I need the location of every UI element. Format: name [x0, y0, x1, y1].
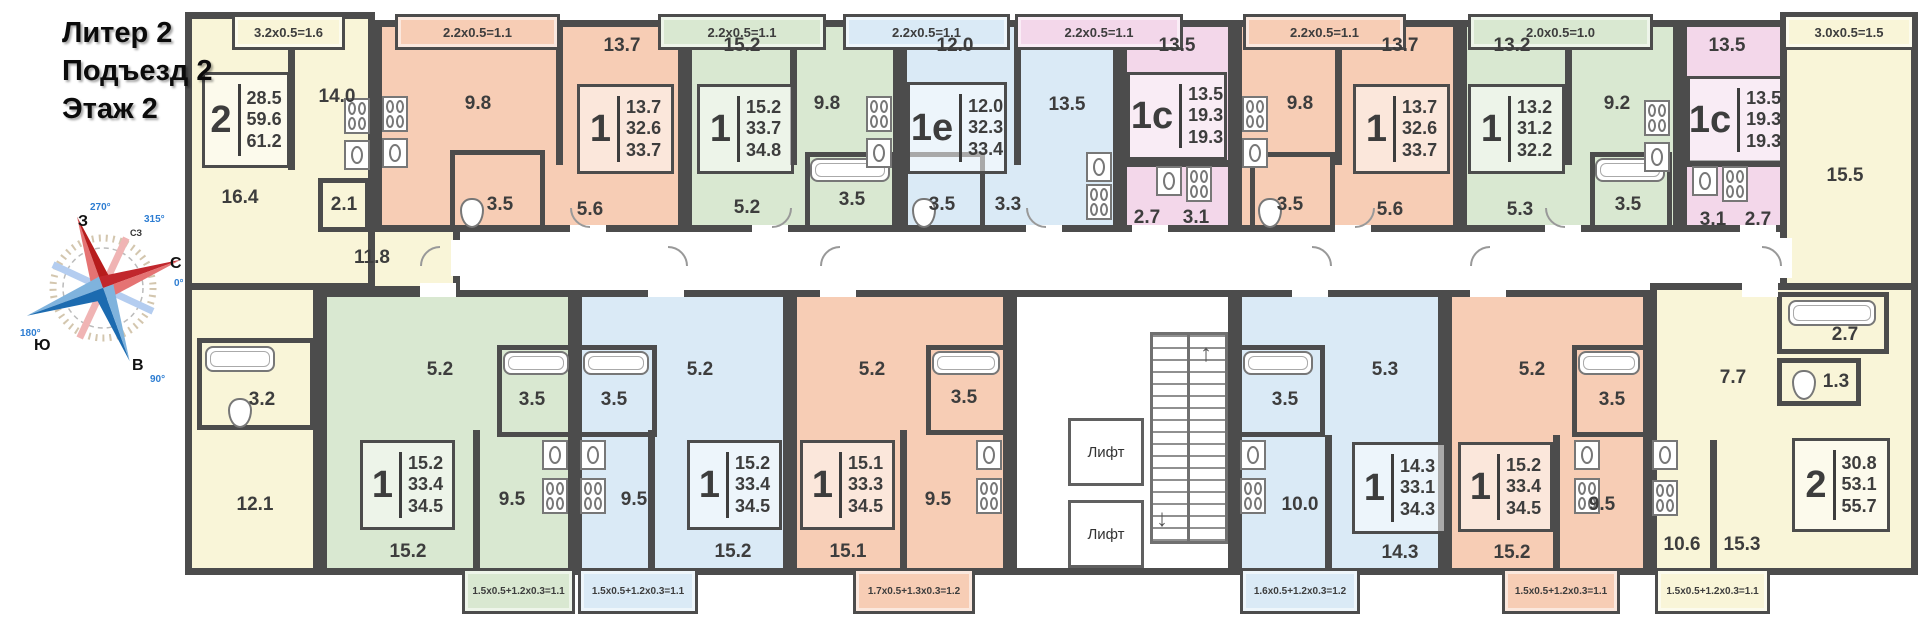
apartment-type: 1 — [812, 466, 833, 504]
compass-west-label: З — [78, 213, 88, 230]
room-area-label: 9.8 — [814, 93, 840, 115]
area-value: 34.5 — [735, 496, 770, 517]
balcony-size-label: 2.2x0.5=1.1 — [1064, 25, 1133, 40]
room-area-label: 5.6 — [1377, 199, 1403, 221]
room-area-label: 5.2 — [687, 359, 713, 381]
sink-icon — [382, 138, 408, 168]
stove-icon — [382, 96, 408, 132]
stove-icon — [1722, 166, 1748, 202]
stairs-up-arrow-icon: ↑ — [1200, 340, 1212, 368]
room-area-label: 15.2 — [724, 35, 761, 57]
compass-east-degrees: 90° — [150, 374, 165, 385]
apartment-type: 1е — [911, 109, 953, 147]
area-value: 33.4 — [735, 474, 770, 495]
title-entrance: Подъезд 2 — [62, 52, 212, 90]
balcony: 2.2x0.5=1.1 — [395, 14, 560, 50]
apartment-type: 1 — [1481, 110, 1502, 148]
room-area-label: 3.5 — [1272, 389, 1298, 411]
area-value: 14.3 — [1400, 456, 1435, 477]
area-value: 15.1 — [848, 453, 883, 474]
area-value: 33.4 — [1506, 476, 1541, 497]
sink-icon — [1240, 440, 1266, 470]
balcony-size-label: 2.2x0.5=1.1 — [443, 25, 512, 40]
door-opening — [1335, 225, 1371, 239]
apartment-type-box: 1е 12.032.333.4 — [907, 82, 1007, 174]
door-opening — [1742, 283, 1778, 297]
room-area-label: 3.5 — [601, 389, 627, 411]
apartment-type-box: 1 15.233.434.5 — [360, 440, 455, 530]
balcony: 3.2x0.5=1.6 — [232, 14, 345, 50]
room-area-label: 3.5 — [1277, 194, 1303, 216]
compass-south-label: Ю — [34, 337, 51, 354]
area-value: 19.3 — [1746, 109, 1781, 130]
apartment-type-box: 1 14.333.134.3 — [1352, 442, 1447, 534]
bathtub-icon — [205, 346, 275, 372]
area-value: 13.5 — [1746, 88, 1781, 109]
apartment-type-box: 1 15.233.434.5 — [1458, 442, 1553, 532]
room-area-label: 13.5 — [1709, 35, 1746, 57]
balcony-size-label: 2.0x0.5=1.0 — [1526, 25, 1595, 40]
room-area-label: 3.3 — [995, 194, 1021, 216]
room-area-label: 3.5 — [1599, 389, 1625, 411]
balcony: 1.5x0.5+1.2x0.3=1.1 — [1655, 568, 1770, 614]
door-swing-arc — [1292, 246, 1332, 286]
room-area-label: 5.3 — [1507, 199, 1533, 221]
apartment-type: 1 — [699, 466, 720, 504]
apartment-type-box: 1 15.233.734.8 — [697, 84, 794, 174]
apartment-type: 1 — [1366, 110, 1387, 148]
balcony: 2.2x0.5=1.1 — [843, 14, 1010, 50]
room-area-label: 12.1 — [237, 494, 274, 516]
sink-icon — [1574, 440, 1600, 470]
elevator-1: Лифт — [1068, 418, 1144, 486]
room-area-label: 3.5 — [839, 189, 865, 211]
area-value: 53.1 — [1842, 474, 1877, 495]
room-area-label: 14.3 — [1382, 542, 1419, 564]
apartment-type: 1 — [372, 466, 393, 504]
room-area-label: 13.5 — [1159, 35, 1196, 57]
balcony-size-label: 1.5x0.5+1.2x0.3=1.1 — [592, 586, 684, 597]
area-value: 32.6 — [626, 118, 661, 139]
room-area-label: 9.5 — [621, 489, 647, 511]
staircase-divider — [1187, 332, 1190, 544]
balcony: 1.6x0.5+1.2x0.3=1.2 — [1240, 568, 1360, 614]
area-value: 13.7 — [626, 97, 661, 118]
bathtub-icon — [583, 351, 649, 375]
area-value: 28.5 — [247, 88, 282, 109]
sink-icon — [1652, 440, 1678, 470]
room-area-label: 10.0 — [1282, 494, 1319, 516]
bathtub-icon — [1243, 351, 1313, 375]
area-value: 34.3 — [1400, 499, 1435, 520]
room-area-label: 15.3 — [1724, 534, 1761, 556]
area-value: 12.0 — [968, 96, 1003, 117]
door-opening — [820, 283, 856, 297]
door-opening — [648, 283, 684, 297]
room-area-label: 3.5 — [487, 194, 513, 216]
apartment-type-box: 1с 13.519.319.3 — [1127, 72, 1227, 160]
area-value: 13.2 — [1517, 97, 1552, 118]
stove-icon — [976, 478, 1002, 514]
room-area-label: 12.0 — [937, 35, 974, 57]
wall-segment — [1553, 435, 1560, 575]
balcony-size-label: 2.2x0.5=1.1 — [1290, 25, 1359, 40]
area-value: 33.4 — [968, 139, 1003, 160]
area-value: 32.2 — [1517, 140, 1552, 161]
apartment-type-box: 1 15.133.334.5 — [800, 440, 895, 530]
elevator-2: Лифт — [1068, 500, 1144, 568]
room-area-label: 2.1 — [331, 194, 357, 216]
elevator-2-label: Лифт — [1087, 526, 1124, 543]
room-area-label: 9.8 — [465, 93, 491, 115]
apartment-type: 1с — [1131, 97, 1173, 135]
room-area-label: 3.1 — [1700, 209, 1726, 231]
apartment-type-box: 1 13.732.633.7 — [1353, 84, 1450, 174]
area-value: 33.3 — [848, 474, 883, 495]
door-opening — [1292, 283, 1328, 297]
sink-icon — [976, 440, 1002, 470]
wall-segment — [1325, 435, 1332, 575]
area-value: 33.7 — [1402, 140, 1437, 161]
area-value: 55.7 — [1842, 496, 1877, 517]
compass-south-degrees: 180° — [20, 328, 41, 339]
compass-rose-icon: З 270° СЗ 315° С 0° В 90° Ю 180° — [18, 196, 198, 388]
apartment-type: 2 — [1805, 466, 1826, 504]
sink-icon — [1692, 166, 1718, 196]
balcony-size-label: 1.7x0.5+1.3x0.3=1.2 — [868, 586, 960, 597]
door-swing-arc — [1470, 246, 1510, 286]
room-area-label: 16.4 — [222, 187, 259, 209]
room-area-label: 5.2 — [859, 359, 885, 381]
area-value: 13.7 — [1402, 97, 1437, 118]
room-area-label: 14.0 — [319, 86, 356, 108]
compass-north-label: С — [170, 255, 182, 272]
wall-segment — [648, 430, 655, 575]
stove-icon — [1086, 184, 1112, 220]
balcony: 1.5x0.5+1.2x0.3=1.1 — [578, 568, 698, 614]
balcony: 1.7x0.5+1.3x0.3=1.2 — [853, 568, 975, 614]
area-value: 34.5 — [1506, 498, 1541, 519]
apartment-type: 1 — [1470, 468, 1491, 506]
area-value: 15.2 — [1506, 455, 1541, 476]
room-area-label: 3.2 — [249, 389, 275, 411]
area-value: 34.5 — [408, 496, 443, 517]
door-swing-arc — [820, 246, 860, 286]
area-value: 15.2 — [746, 97, 781, 118]
sink-icon — [1242, 138, 1268, 168]
room-area-label: 5.2 — [427, 359, 453, 381]
room-area-label: 5.2 — [734, 197, 760, 219]
door-swing-arc — [648, 246, 688, 286]
area-value: 19.3 — [1188, 105, 1223, 126]
elevator-1-label: Лифт — [1087, 444, 1124, 461]
room-area-label: 3.5 — [951, 387, 977, 409]
area-value: 15.2 — [408, 453, 443, 474]
room-area-label: 13.2 — [1494, 35, 1531, 57]
sink-icon — [542, 440, 568, 470]
stove-icon — [866, 96, 892, 132]
sink-icon — [344, 140, 370, 170]
area-value: 33.7 — [746, 118, 781, 139]
area-value: 32.3 — [968, 117, 1003, 138]
stairs-down-arrow-icon: ↓ — [1156, 505, 1168, 533]
floor-plan-page: { "title": {"line1": "Литер 2", "line2":… — [0, 0, 1920, 634]
apartment-type-box: 2 28.559.661.2 — [202, 72, 290, 168]
room-area-label: 5.6 — [577, 199, 603, 221]
stove-icon — [580, 478, 606, 514]
apartment-type-box: 1 15.233.434.5 — [687, 440, 782, 530]
compass-north-degrees: 0° — [174, 278, 184, 289]
bathtub-icon — [1788, 300, 1876, 326]
room-area-label: 9.8 — [1287, 93, 1313, 115]
area-value: 13.5 — [1188, 84, 1223, 105]
area-value: 15.2 — [735, 453, 770, 474]
balcony-size-label: 3.0x0.5=1.5 — [1814, 25, 1883, 40]
bathtub-icon — [932, 351, 1000, 375]
area-value: 30.8 — [1842, 453, 1877, 474]
door-swing-arc — [1742, 246, 1782, 286]
wall-segment — [1710, 440, 1717, 575]
stove-icon — [1240, 478, 1266, 514]
balcony-size-label: 1.5x0.5+1.2x0.3=1.1 — [1666, 586, 1758, 597]
title-floor: Этаж 2 — [62, 90, 212, 128]
room-area-label: 2.7 — [1134, 207, 1160, 229]
apartment-type: 1 — [710, 110, 731, 148]
bathtub-icon — [1578, 351, 1640, 375]
door-opening — [752, 225, 788, 239]
room-area-label: 15.2 — [390, 541, 427, 563]
door-opening — [451, 240, 465, 276]
stove-icon — [542, 478, 568, 514]
room-area-label: 15.1 — [830, 541, 867, 563]
title-liter: Литер 2 — [62, 14, 212, 52]
area-value: 61.2 — [247, 131, 282, 152]
stove-icon — [1644, 100, 1670, 136]
apartment-type: 1 — [1364, 469, 1385, 507]
area-value: 19.3 — [1188, 127, 1223, 148]
apartment-type-box: 1с 13.519.319.3 — [1687, 76, 1783, 164]
apartment-right-top — [1780, 12, 1918, 290]
area-value: 19.3 — [1746, 131, 1781, 152]
room-area-label: 13.5 — [1049, 94, 1086, 116]
room-area-label: 5.2 — [1519, 359, 1545, 381]
room-area-label: 15.2 — [715, 541, 752, 563]
balcony: 1.5x0.5+1.2x0.3=1.1 — [462, 568, 575, 614]
stove-icon — [1242, 96, 1268, 132]
room-area-label: 13.7 — [604, 35, 641, 57]
room-area-label: 2.7 — [1745, 209, 1771, 231]
room-area-label: 5.3 — [1372, 359, 1398, 381]
room-area-label: 10.6 — [1664, 534, 1701, 556]
area-value: 33.4 — [408, 474, 443, 495]
apartment-type-box: 1 13.231.232.2 — [1468, 84, 1565, 174]
room-area-label: 9.5 — [1589, 494, 1615, 516]
sink-icon — [1086, 152, 1112, 182]
area-value: 33.7 — [626, 140, 661, 161]
room-area-label: 11.8 — [354, 247, 390, 269]
area-value: 31.2 — [1517, 118, 1552, 139]
room-area-label: 13.7 — [1382, 35, 1419, 57]
area-value: 34.8 — [746, 140, 781, 161]
bathtub-icon — [503, 351, 569, 375]
balcony: 3.0x0.5=1.5 — [1783, 14, 1915, 50]
room-area-label: 3.1 — [1183, 207, 1209, 229]
balcony: 1.5x0.5+1.2x0.3=1.1 — [1502, 568, 1620, 614]
balcony-size-label: 1.5x0.5+1.2x0.3=1.1 — [1515, 586, 1607, 597]
room-area-label: 3.5 — [1615, 194, 1641, 216]
area-value: 59.6 — [247, 109, 282, 130]
apartment-type: 1 — [590, 110, 611, 148]
sink-icon — [580, 440, 606, 470]
area-value: 33.1 — [1400, 477, 1435, 498]
stove-icon — [1652, 480, 1678, 516]
page-title: Литер 2 Подъезд 2 Этаж 2 — [62, 14, 212, 128]
room-area-label: 15.5 — [1827, 165, 1864, 187]
room-area-label: 2.7 — [1832, 324, 1858, 346]
area-value: 32.6 — [1402, 118, 1437, 139]
room-area-label: 9.5 — [499, 489, 525, 511]
compass-east-label: В — [132, 357, 144, 374]
compass-nw-degrees: 315° — [144, 214, 165, 225]
stove-icon — [1186, 166, 1212, 202]
door-opening — [420, 283, 456, 297]
balcony-size-label: 3.2x0.5=1.6 — [254, 25, 323, 40]
compass-nw-label: СЗ — [130, 228, 142, 238]
door-opening — [1470, 283, 1506, 297]
room-area-label: 3.5 — [519, 389, 545, 411]
compass-west-degrees: 270° — [90, 202, 111, 213]
area-value: 34.5 — [848, 496, 883, 517]
room-area-label: 3.5 — [929, 194, 955, 216]
sink-icon — [1644, 142, 1670, 172]
apartment-type-box: 1 13.732.633.7 — [577, 84, 674, 174]
balcony-size-label: 1.6x0.5+1.2x0.3=1.2 — [1254, 586, 1346, 597]
room-area-label: 15.2 — [1494, 542, 1531, 564]
wall-segment — [900, 430, 907, 575]
sink-icon — [866, 138, 892, 168]
room-area-label: 9.5 — [925, 489, 951, 511]
room-area-label: 7.7 — [1720, 367, 1746, 389]
room-area-label: 1.3 — [1823, 371, 1849, 393]
room-area-label: 9.2 — [1604, 93, 1630, 115]
apartment-type-box: 2 30.853.155.7 — [1792, 438, 1890, 532]
wall-segment — [473, 430, 480, 575]
sink-icon — [1156, 166, 1182, 196]
apartment-type: 1с — [1689, 101, 1731, 139]
apartment-type: 2 — [210, 101, 231, 139]
balcony-size-label: 1.5x0.5+1.2x0.3=1.1 — [472, 586, 564, 597]
